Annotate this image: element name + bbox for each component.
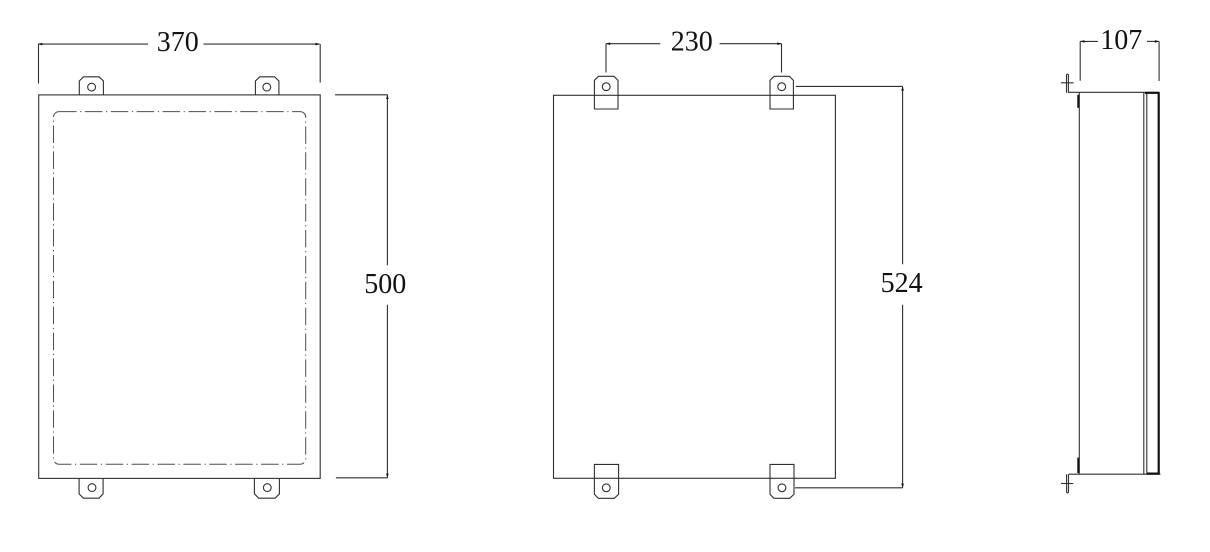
svg-text:524: 524 bbox=[881, 268, 923, 299]
svg-text:370: 370 bbox=[157, 27, 199, 58]
svg-text:230: 230 bbox=[671, 27, 713, 58]
svg-text:107: 107 bbox=[1100, 25, 1142, 56]
svg-text:500: 500 bbox=[364, 269, 406, 300]
